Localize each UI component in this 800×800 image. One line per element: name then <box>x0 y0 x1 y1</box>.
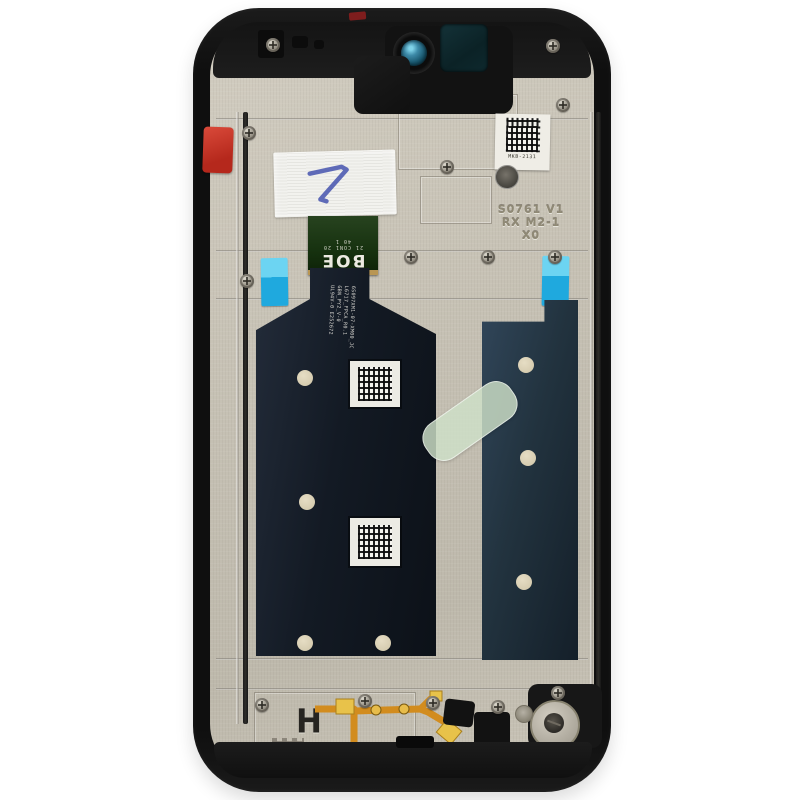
display-flex-connector: BOE 21 CON1 20 40 1 <box>308 216 378 275</box>
screw <box>548 250 562 264</box>
left-frame-rail-highlight <box>236 112 239 724</box>
earpiece-component <box>292 36 308 48</box>
engraved-code-line: S0761 V1 <box>492 203 570 216</box>
screw <box>242 126 256 140</box>
bracket-lug-hole <box>515 705 533 723</box>
white-fabric-tape <box>273 149 397 217</box>
connector-pin-labels: 21 CON1 20 <box>323 244 363 250</box>
machined-recess <box>420 176 492 224</box>
boe-logo-text: BOE <box>320 250 365 270</box>
connector-pin-labels: 40 1 <box>335 238 351 244</box>
bracket-screw <box>544 713 564 733</box>
speaker-mesh-hole <box>495 165 519 189</box>
qr-code <box>358 367 392 401</box>
plate-seam <box>216 250 588 252</box>
engraved-code-line: RX M2-1 <box>492 216 570 229</box>
screw <box>255 698 269 712</box>
engraved-code-line: X0 <box>492 229 570 242</box>
adhesive-dot <box>375 635 391 651</box>
handwritten-ink-mark <box>273 149 397 217</box>
screw <box>240 274 254 288</box>
screw <box>491 700 505 714</box>
qr-code <box>358 525 392 559</box>
right-frame-rail-highlight <box>590 112 593 724</box>
red-paint-mark <box>349 11 367 20</box>
flex-part-number-print: 6S097XM1-07-XM00_JC L6717_FPCA_R0.1 GBN_… <box>326 285 356 356</box>
qr-code <box>505 118 540 153</box>
screw <box>551 686 565 700</box>
adhesive-dot <box>297 370 313 386</box>
screw <box>556 98 570 112</box>
left-frame-rail <box>243 112 248 724</box>
flex-qr-sticker <box>350 518 400 566</box>
screw <box>404 250 418 264</box>
red-pull-tab <box>202 126 234 173</box>
foam-pad <box>354 56 410 114</box>
serial-qr-sticker: MKB-2131 <box>495 114 551 171</box>
screw <box>481 250 495 264</box>
flex-qr-sticker <box>350 361 400 407</box>
screw <box>358 694 372 708</box>
connector-silkscreen: BOE 21 CON1 20 40 1 <box>308 216 378 270</box>
bottom-component <box>443 698 476 727</box>
engraved-code: S0761 V1 RX M2-1 X0 <box>492 203 570 242</box>
proximity-sensor-window <box>440 24 488 72</box>
screw <box>440 160 454 174</box>
right-frame-rail <box>596 112 601 724</box>
photo-canvas: MKB-2131 S0761 V1 RX M2-1 X0 BOE 21 CON1… <box>0 0 800 800</box>
qr-caption: MKB-2131 <box>508 154 536 160</box>
adhesive-dot <box>297 635 313 651</box>
adhesive-dot <box>299 494 315 510</box>
earpiece-component <box>314 40 324 49</box>
cyan-tape-left <box>261 258 289 306</box>
screw <box>426 696 440 710</box>
lcd-back-panel <box>482 300 578 660</box>
adhesive-dot <box>516 574 532 590</box>
screw <box>266 38 280 52</box>
adhesive-dot <box>518 357 534 373</box>
adhesive-dot <box>520 450 536 466</box>
charging-port-connector <box>396 736 434 748</box>
screw <box>546 39 560 53</box>
